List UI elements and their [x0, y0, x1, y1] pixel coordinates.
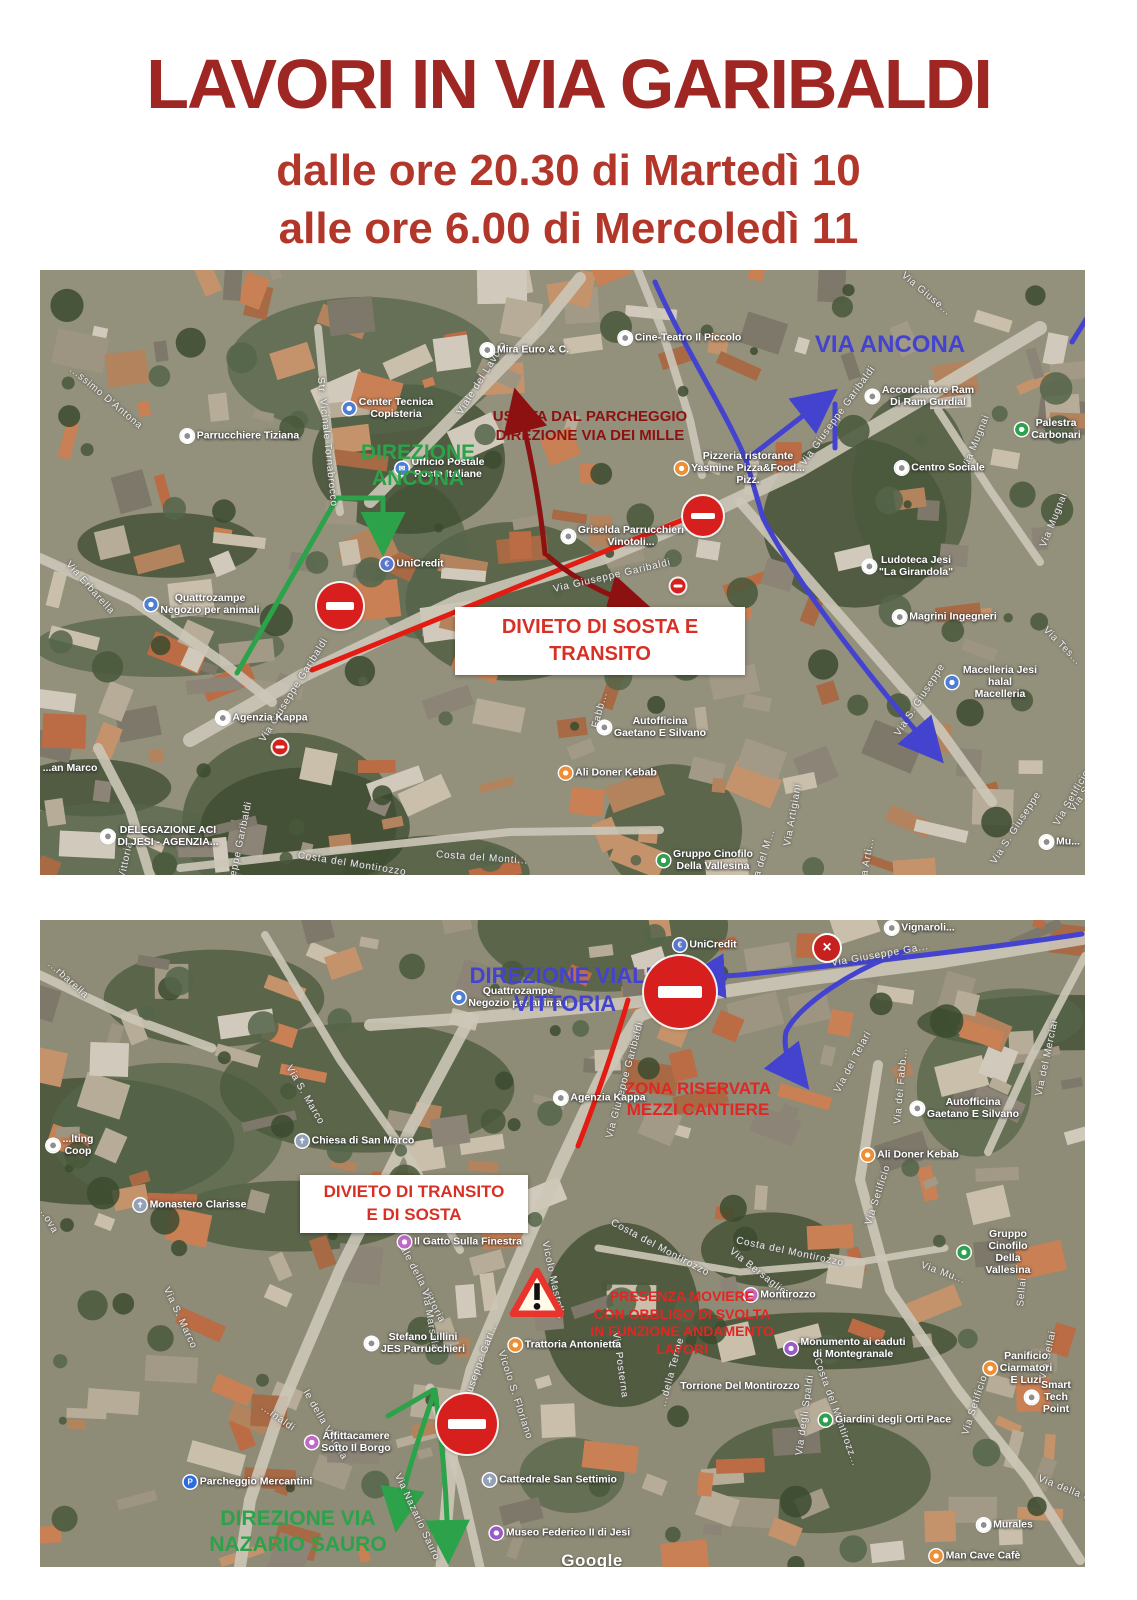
generic-icon — [893, 611, 906, 624]
annotation-text-blue: DIREZIONE VIALE VITTORIA — [470, 962, 661, 1017]
poi-label-text: Smart Tech Point — [1041, 1379, 1071, 1415]
generic-icon — [365, 1337, 378, 1350]
poi-label-text: Parrucchiere Tiziana — [197, 430, 300, 442]
poi-label-text: Chiesa di San Marco — [312, 1135, 415, 1147]
no-entry-sign — [437, 1394, 497, 1454]
annotation-text-red: ZONA RISERVATA MEZZI CANTIERE — [625, 1078, 771, 1121]
warning-triangle-sign — [509, 1268, 565, 1323]
generic-icon — [216, 712, 229, 725]
poi-label: Pizzeria ristorante Yasmine Pizza&Food..… — [675, 450, 805, 486]
poi-label-text: UniCredit — [396, 558, 443, 570]
street-label: Via Giuseppe Ga... — [830, 941, 929, 969]
street-label: Viale della Vittoria — [393, 1235, 448, 1325]
poi-label-text: Magrini Ingegneri — [909, 611, 997, 623]
generic-icon — [911, 1102, 924, 1115]
poi-label-text: UniCredit — [689, 939, 736, 951]
poi-label: Palestra Carbonari — [1015, 417, 1081, 441]
poi-label: Museo Federico II di Jesi — [490, 1527, 630, 1540]
map-annotations: Viale del LavoroStr. Vicinale Tornabrocc… — [40, 270, 1085, 875]
poi-label: Giardini degli Orti Pace — [819, 1414, 951, 1427]
annotation-text-darkred: USCITA DAL PARCHEGGIO DIREZIONE VIA DEI … — [493, 408, 687, 446]
lodging-icon — [398, 1236, 411, 1249]
poi-label: Mira Euro & C. — [481, 344, 569, 357]
street-label: Via Mugnai — [1038, 491, 1070, 549]
poi-label: Man Cave Cafè — [930, 1550, 1021, 1563]
generic-icon — [47, 1139, 60, 1152]
street-label: ...inaldi — [259, 1402, 297, 1433]
map-bottom-aerial: Via Giuseppe Ga...Via Giuseppe Garibaldi… — [40, 920, 1085, 1567]
poi-label-text: Cattedrale San Settimio — [499, 1474, 617, 1486]
street-label: Costa del Montirozzo — [297, 850, 407, 875]
annotation-text-green: DIREZIONE ANCONA — [361, 440, 475, 493]
generic-icon — [977, 1519, 990, 1532]
generic-icon — [181, 430, 194, 443]
poi-label-text: Pizzeria ristorante Yasmine Pizza&Food..… — [691, 450, 805, 486]
poi-label-text: Ali Doner Kebab — [877, 1149, 959, 1161]
church-icon: ✝ — [296, 1135, 309, 1148]
street-label: ...ssimo D'Antona — [67, 364, 144, 431]
poi-label: Gruppo Cinofilo Della Vallesina — [657, 848, 753, 872]
poi-label-text: Murales — [993, 1519, 1033, 1531]
prohibition-notice-box: DIVIETO DI TRANSITOE DI SOSTA — [300, 1175, 528, 1233]
street-label: Via dei Fabb... — [892, 1048, 910, 1125]
poi-label: Il Gatto Sulla Finestra — [398, 1236, 522, 1249]
park-icon — [657, 854, 670, 867]
map-annotations: Via Giuseppe Ga...Via Giuseppe Garibaldi… — [40, 920, 1085, 1567]
poi-label: Centro Sociale — [895, 462, 985, 475]
museum-icon — [490, 1527, 503, 1540]
shop-icon — [946, 676, 959, 689]
street-label: Via S. Giuseppe — [892, 662, 947, 739]
poi-label-text: Monastero Clarisse — [150, 1199, 247, 1211]
street-label: Sellai — [1015, 1277, 1029, 1307]
generic-icon — [1040, 836, 1053, 849]
poi-label: €UniCredit — [673, 939, 736, 952]
church-icon: ✝ — [134, 1199, 147, 1212]
map-top-aerial: Viale del LavoroStr. Vicinale Tornabrocc… — [40, 270, 1085, 875]
poi-label-text: Gruppo Cinofilo Della Vallesina — [673, 848, 753, 872]
poi-label-text: Ali Doner Kebab — [575, 767, 657, 779]
schedule-line-1: dalle ore 20.30 di Martedì 10 — [0, 146, 1137, 196]
generic-icon — [863, 560, 876, 573]
no-entry-sign — [683, 496, 723, 536]
street-label: Via S. Marco — [161, 1285, 199, 1350]
no-entry-sign — [644, 956, 716, 1028]
park-icon — [958, 1246, 971, 1259]
street-label: Via Giuse... — [899, 270, 953, 318]
street-label: Via dei Telari — [832, 1029, 874, 1094]
poi-label-text: Center Tecnica Copisteria — [359, 396, 434, 420]
street-label: Via Tes... — [1041, 625, 1083, 667]
poi-label-text: Agenzia Kappa — [232, 712, 307, 724]
poi-label: ...lting Coop — [47, 1133, 94, 1157]
poi-label-text: Autofficina Gaetano E Silvano — [614, 715, 706, 739]
poi-label: ✝Chiesa di San Marco — [296, 1135, 415, 1148]
poi-label-text: Palestra Carbonari — [1031, 417, 1081, 441]
church-icon: ✝ — [483, 1474, 496, 1487]
poi-label-text: Ludoteca Jesi "La Girandola" — [879, 554, 953, 578]
street-label: ...rbarella — [46, 959, 91, 1001]
poi-label-text: Giardini degli Orti Pace — [835, 1414, 951, 1426]
no-entry-sign — [273, 740, 288, 755]
poi-label-text: Affittacamere Sotto Il Borgo — [321, 1430, 390, 1454]
park-icon — [819, 1414, 832, 1427]
street-label: Costa del Montirozzo — [609, 1217, 711, 1278]
poi-label-text: Museo Federico II di Jesi — [506, 1527, 630, 1539]
poi-label: Mu... — [1040, 836, 1080, 849]
poi-label: Agenzia Kappa — [216, 712, 307, 725]
street-label: Via Erbarella — [63, 559, 116, 617]
notice-line: DIVIETO DI SOSTA E — [502, 614, 698, 641]
poi-label-text: Cine-Teatro Il Piccolo — [635, 332, 742, 344]
road-closure-icon: × — [814, 935, 840, 961]
generic-icon — [101, 830, 114, 843]
poi-label: DELEGAZIONE ACI DI JESI - AGENZIA... — [101, 824, 218, 848]
street-label: Via della Gra... — [1036, 1473, 1085, 1513]
poi-label: ✝Cattedrale San Settimio — [483, 1474, 617, 1487]
bank-icon: € — [673, 939, 686, 952]
lodging-icon — [305, 1436, 318, 1449]
flyer-page: LAVORI IN VIA GARIBALDI dalle ore 20.30 … — [0, 0, 1137, 1600]
street-label: ...eppe Garibaldi — [226, 800, 255, 875]
street-label: Via S. Giuseppe — [988, 790, 1043, 867]
poi-label-text: Stefano Lillini JES Parrucchieri — [381, 1331, 465, 1355]
poi-label: Ali Doner Kebab — [861, 1149, 959, 1162]
poi-label: Ali Doner Kebab — [559, 767, 657, 780]
generic-icon — [481, 344, 494, 357]
poi-label: Macelleria Jesi halal Macelleria — [946, 664, 1039, 700]
poi-label: Griselda Parrucchieri Vinotoli... — [562, 524, 684, 548]
poi-label-text: ...an Marco — [43, 762, 98, 774]
street-label: Str. Vicinale Tornabrocco — [315, 377, 340, 508]
poi-label-text: ...lting Coop — [63, 1133, 94, 1157]
food-icon — [930, 1550, 943, 1563]
museum-icon — [785, 1342, 798, 1355]
generic-icon — [619, 332, 632, 345]
poi-label-text: Parcheggio Mercantini — [200, 1476, 313, 1488]
shop-icon — [144, 598, 157, 611]
street-label: Via S. Marco — [284, 1063, 327, 1126]
street-label: Via Arti... — [857, 837, 876, 875]
notice-line: DIVIETO DI TRANSITO — [324, 1181, 505, 1204]
poi-label-text: Autofficina Gaetano E Silvano — [927, 1096, 1019, 1120]
poi-label-text: Macelleria Jesi halal Macelleria — [962, 664, 1039, 700]
poi-label: ✝Monastero Clarisse — [134, 1199, 247, 1212]
poi-label-text: Mira Euro & C. — [497, 344, 569, 356]
poi-label: Acconciatore Ram Di Ram Gurdial — [866, 384, 974, 408]
poi-label: Smart Tech Point — [1025, 1379, 1071, 1415]
generic-icon — [562, 530, 575, 543]
street-label: Via Giuseppe Garibaldi — [552, 557, 672, 595]
poi-label: Quattrozampe Negozio per animali — [144, 592, 259, 616]
poi-label: Murales — [977, 1519, 1033, 1532]
generic-icon — [885, 922, 898, 935]
street-label: Costa del Monti... — [436, 849, 529, 866]
poi-label: Stefano Lillini JES Parrucchieri — [365, 1331, 465, 1355]
poi-label: Monumento ai caduti di Montegranale — [785, 1336, 906, 1360]
street-label: Via del Merciai — [1034, 1019, 1061, 1097]
food-icon — [559, 767, 572, 780]
poi-label: Center Tecnica Copisteria — [343, 396, 434, 420]
annotation-text-green: DIREZIONE VIA NAZARIO SAURO — [209, 1506, 386, 1559]
annotation-text-red: PRESENZA MOVIERE CON OBBLIGO DI SVOLTA I… — [590, 1288, 774, 1358]
generic-icon — [1025, 1391, 1038, 1404]
notice-line: TRANSITO — [549, 641, 651, 668]
street-label: Via Setificio — [863, 1164, 893, 1227]
poi-label: Autofficina Gaetano E Silvano — [911, 1096, 1019, 1120]
parking-icon: P — [184, 1476, 197, 1489]
poi-label-text: Man Cave Cafè — [946, 1550, 1021, 1562]
poi-label: Parrucchiere Tiziana — [181, 430, 300, 443]
street-label: Costa del Montirozz... — [811, 1356, 860, 1467]
generic-icon — [866, 390, 879, 403]
poi-label-text: Griselda Parrucchieri Vinotoli... — [578, 524, 684, 548]
street-label: Via Artigiani — [782, 783, 804, 847]
generic-icon — [598, 721, 611, 734]
poi-label: Torrione Del Montirozzo — [680, 1380, 799, 1392]
food-icon — [509, 1339, 522, 1352]
poi-label-text: Acconciatore Ram Di Ram Gurdial — [882, 384, 974, 408]
poi-label: €UniCredit — [380, 558, 443, 571]
bank-icon: € — [380, 558, 393, 571]
no-entry-sign — [317, 583, 363, 629]
poi-label-text: Mu... — [1056, 836, 1080, 848]
poi-label-text: Quattrozampe Negozio per animali — [160, 592, 259, 616]
no-entry-sign — [671, 579, 686, 594]
street-label: Vicolo S. Floriano — [495, 1349, 534, 1440]
prohibition-notice-box: DIVIETO DI SOSTA ETRANSITO — [455, 607, 745, 675]
poi-label-text: Torrione Del Montirozzo — [680, 1380, 799, 1392]
street-label: Via Giuseppe Garibaldi — [257, 636, 330, 744]
generic-icon — [554, 1092, 567, 1105]
street-label: Via Nazario Sauro — [392, 1472, 442, 1562]
poi-label-text: Centro Sociale — [911, 462, 985, 474]
poi-label-text: Gruppo Cinofilo Della Vallesina — [974, 1228, 1043, 1276]
poi-label: Affittacamere Sotto Il Borgo — [305, 1430, 390, 1454]
generic-icon — [895, 462, 908, 475]
poi-label: Gruppo Cinofilo Della Vallesina — [958, 1228, 1043, 1276]
street-label: ...ova — [40, 1205, 60, 1236]
poi-label: ...an Marco — [43, 762, 98, 774]
poi-label: Ludoteca Jesi "La Girandola" — [863, 554, 953, 578]
poi-label: Autofficina Gaetano E Silvano — [598, 715, 706, 739]
food-icon — [675, 462, 688, 475]
poi-label-text: Il Gatto Sulla Finestra — [414, 1236, 522, 1248]
poi-label-text: Monumento ai caduti di Montegranale — [801, 1336, 906, 1360]
poi-label: PParcheggio Mercantini — [184, 1476, 313, 1489]
schedule-line-2: alle ore 6.00 di Mercoledì 11 — [0, 204, 1137, 254]
annotation-text-blue: VIA ANCONA — [815, 330, 965, 360]
notice-line: E DI SOSTA — [366, 1204, 461, 1227]
poi-label-text: Vignaroli... — [901, 922, 954, 934]
poi-label: Vignaroli... — [885, 922, 954, 935]
poi-label: Magrini Ingegneri — [893, 611, 997, 624]
food-icon — [984, 1362, 997, 1375]
poi-label-text: DELEGAZIONE ACI DI JESI - AGENZIA... — [117, 824, 218, 848]
park-icon — [1015, 423, 1028, 436]
poi-label: Cine-Teatro Il Piccolo — [619, 332, 742, 345]
food-icon — [861, 1149, 874, 1162]
page-title: LAVORI IN VIA GARIBALDI — [0, 44, 1137, 124]
google-watermark: Google — [561, 1551, 623, 1567]
street-label: Via Giuseppe Garibaldi — [798, 364, 878, 468]
shop-icon — [343, 402, 356, 415]
shop-icon — [452, 991, 465, 1004]
